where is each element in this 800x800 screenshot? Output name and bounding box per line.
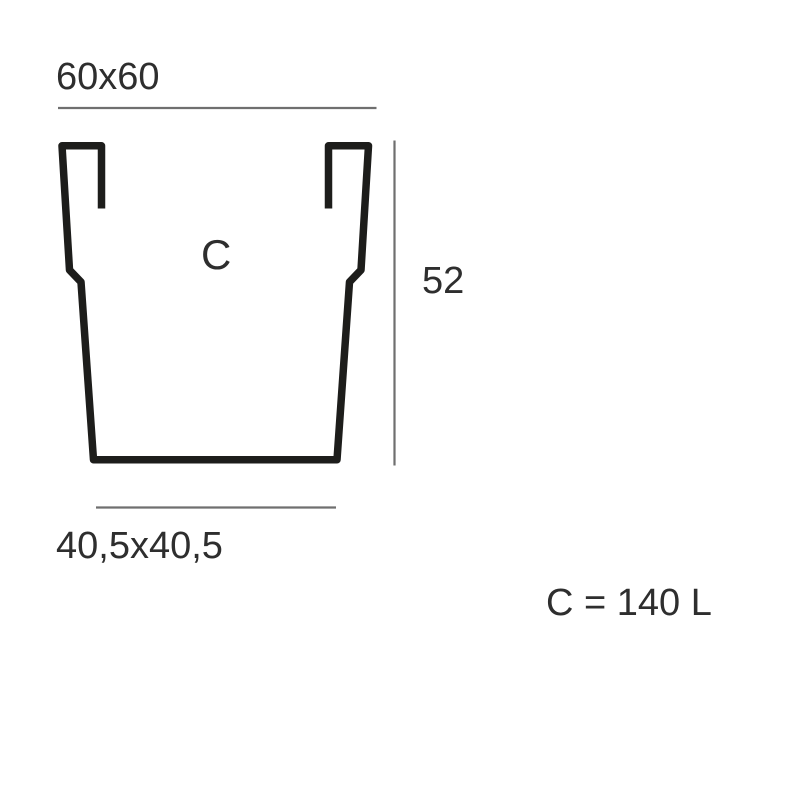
top-width-label: 60x60 bbox=[56, 58, 160, 96]
dimension-diagram-page: 60x60 52 C 40,5x40,5 C = 140 L bbox=[0, 0, 800, 800]
capacity-value-label: C = 140 L bbox=[546, 584, 712, 622]
planter-outline-drawing bbox=[62, 146, 369, 460]
bottom-width-label: 40,5x40,5 bbox=[56, 527, 223, 565]
height-label: 52 bbox=[422, 262, 464, 300]
capacity-letter-label: C bbox=[201, 234, 231, 276]
planter-drawing bbox=[0, 0, 800, 800]
